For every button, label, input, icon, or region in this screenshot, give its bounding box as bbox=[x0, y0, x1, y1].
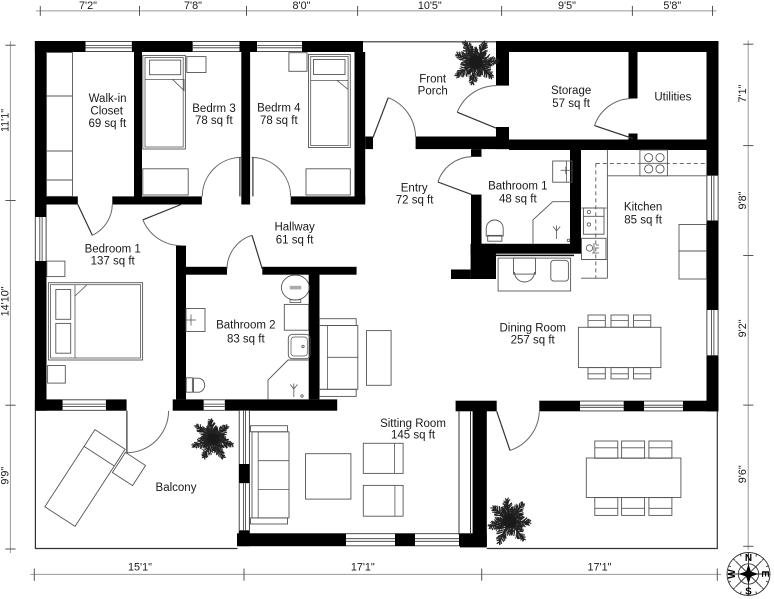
svg-text:15'1": 15'1" bbox=[128, 562, 152, 574]
svg-text:Porch: Porch bbox=[418, 85, 448, 97]
svg-text:17'1": 17'1" bbox=[351, 562, 375, 574]
svg-text:7'1": 7'1" bbox=[737, 84, 749, 102]
svg-text:5'8": 5'8" bbox=[663, 0, 681, 12]
svg-text:83 sq ft: 83 sq ft bbox=[227, 334, 266, 346]
svg-text:Entry: Entry bbox=[401, 183, 428, 195]
svg-text:78 sq ft: 78 sq ft bbox=[195, 115, 234, 127]
svg-text:9'5": 9'5" bbox=[558, 0, 576, 12]
svg-text:Bedrm 4: Bedrm 4 bbox=[257, 103, 301, 115]
svg-text:72 sq ft: 72 sq ft bbox=[396, 195, 435, 207]
svg-text:Bedroom 1: Bedroom 1 bbox=[85, 243, 141, 255]
svg-text:9'6": 9'6" bbox=[737, 465, 749, 483]
svg-text:Sitting Room: Sitting Room bbox=[380, 418, 446, 430]
svg-text:11'1": 11'1" bbox=[0, 109, 11, 132]
svg-text:7'2": 7'2" bbox=[79, 0, 97, 12]
svg-text:Storage: Storage bbox=[551, 85, 591, 97]
svg-text:10'5": 10'5" bbox=[418, 0, 442, 12]
svg-text:Utilities: Utilities bbox=[654, 92, 691, 104]
svg-text:7'8": 7'8" bbox=[184, 0, 202, 12]
svg-text:61 sq ft: 61 sq ft bbox=[276, 234, 315, 246]
svg-text:257 sq ft: 257 sq ft bbox=[511, 334, 556, 346]
svg-text:Closet: Closet bbox=[90, 105, 123, 117]
svg-text:Bathroom 1: Bathroom 1 bbox=[488, 181, 547, 193]
svg-text:14'10": 14'10" bbox=[0, 286, 11, 316]
svg-text:Bathroom 2: Bathroom 2 bbox=[216, 320, 275, 332]
svg-text:57 sq ft: 57 sq ft bbox=[552, 98, 591, 110]
svg-text:9'9": 9'9" bbox=[0, 467, 11, 485]
svg-text:78 sq ft: 78 sq ft bbox=[260, 115, 299, 127]
svg-text:Walk-in: Walk-in bbox=[89, 93, 127, 105]
svg-text:Hallway: Hallway bbox=[274, 221, 315, 233]
svg-text:N: N bbox=[745, 553, 752, 564]
svg-text:E: E bbox=[759, 571, 770, 578]
svg-text:S: S bbox=[745, 586, 752, 597]
svg-text:85 sq ft: 85 sq ft bbox=[624, 214, 663, 226]
svg-text:8'0": 8'0" bbox=[293, 0, 311, 12]
svg-text:Kitchen: Kitchen bbox=[624, 201, 662, 213]
svg-text:17'1": 17'1" bbox=[588, 562, 612, 574]
svg-text:145 sq ft: 145 sq ft bbox=[391, 430, 436, 442]
svg-text:48 sq ft: 48 sq ft bbox=[499, 194, 538, 206]
svg-text:69 sq ft: 69 sq ft bbox=[88, 118, 127, 130]
svg-text:137 sq ft: 137 sq ft bbox=[91, 256, 136, 268]
svg-text:Balcony: Balcony bbox=[156, 482, 197, 494]
svg-text:Front: Front bbox=[419, 73, 447, 85]
svg-text:9'8": 9'8" bbox=[737, 191, 749, 209]
svg-text:9'2": 9'2" bbox=[737, 319, 749, 337]
svg-text:Dining Room: Dining Room bbox=[499, 323, 565, 335]
svg-text:W: W bbox=[727, 569, 738, 579]
svg-text:Bedrm 3: Bedrm 3 bbox=[192, 103, 235, 115]
